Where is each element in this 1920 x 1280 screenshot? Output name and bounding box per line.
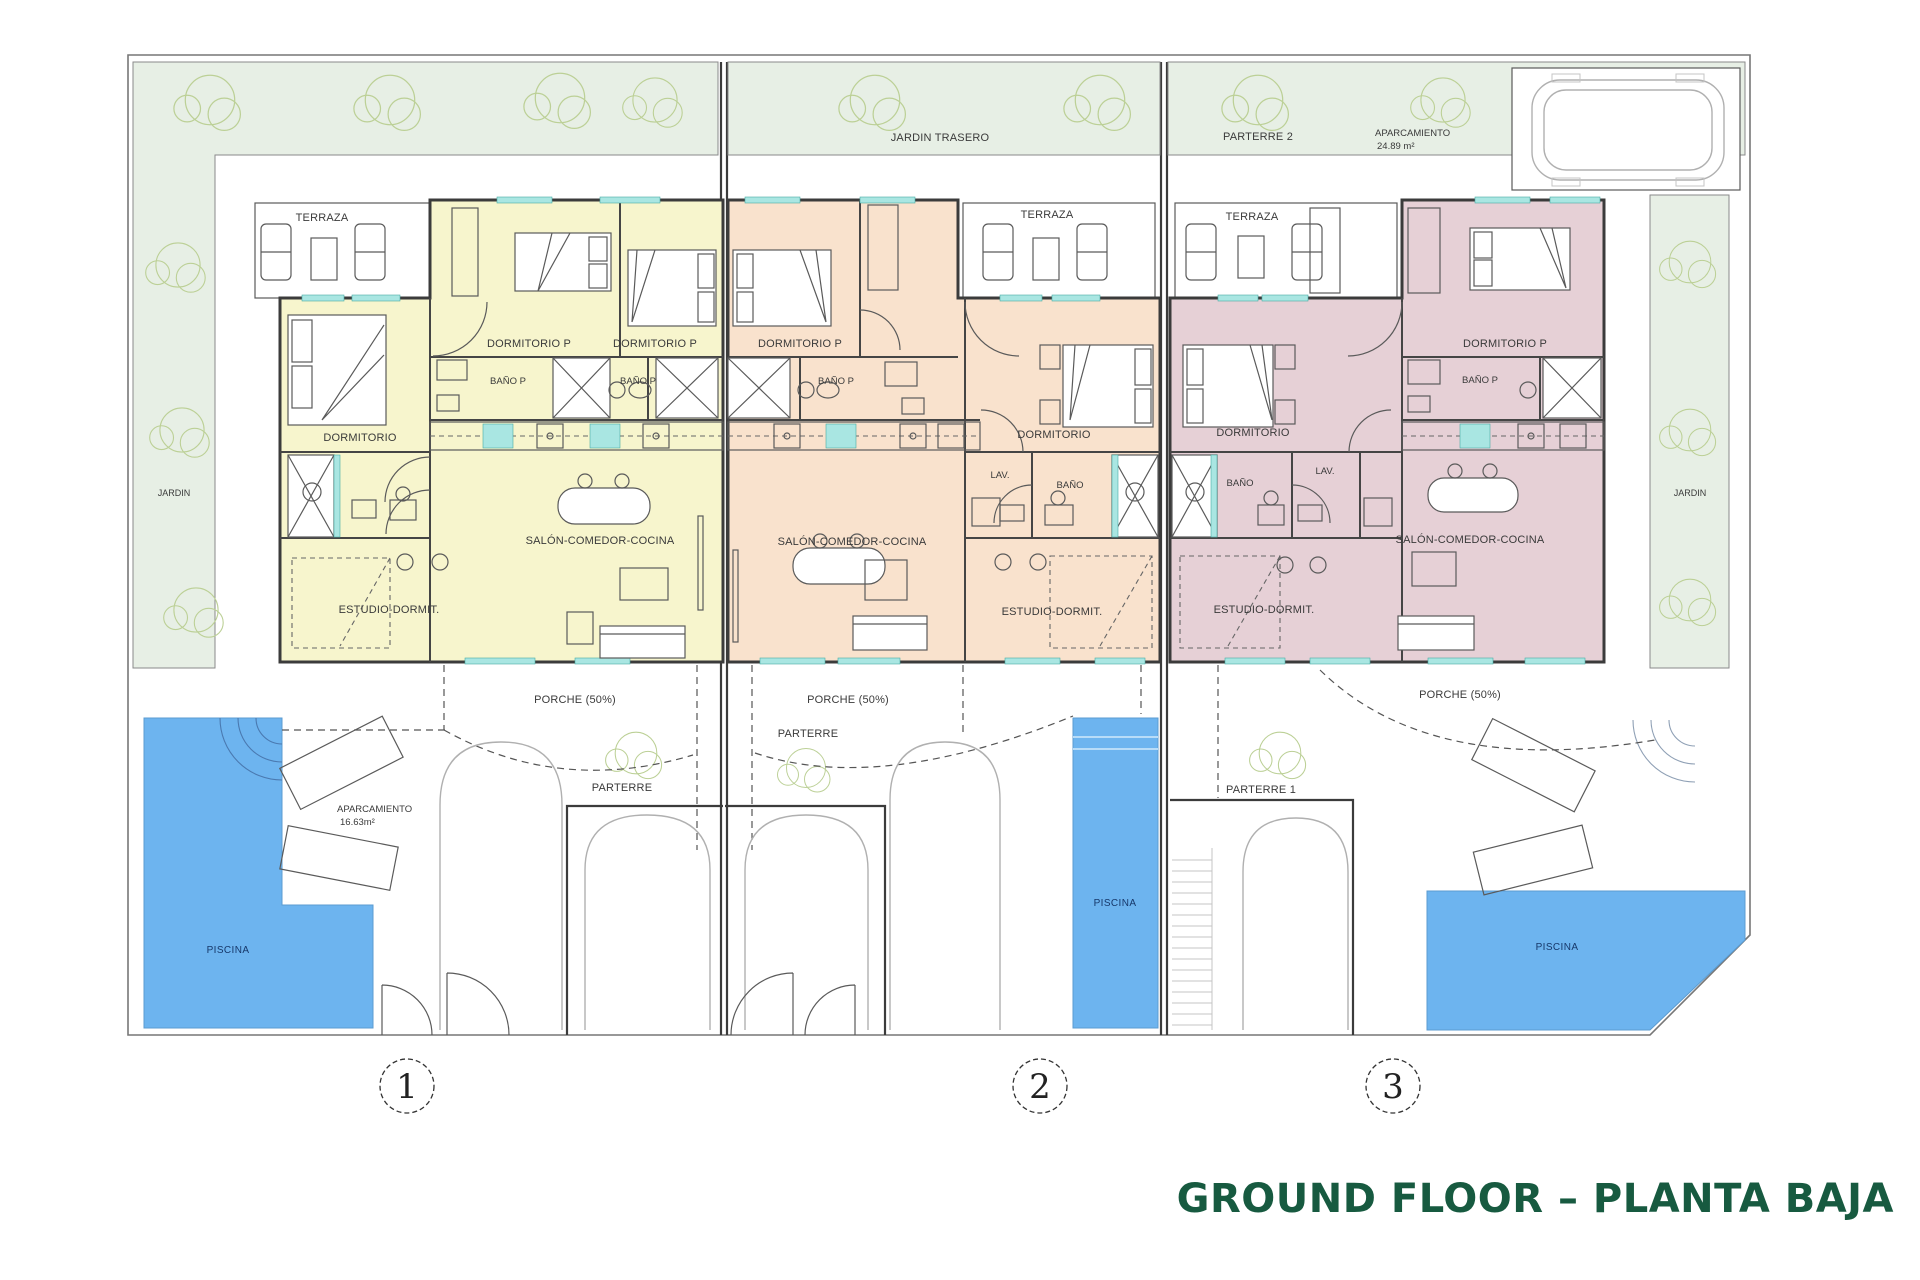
label-h3-estudio: ESTUDIO-DORMIT.: [1214, 604, 1315, 616]
label-jardin-right: JARDIN: [1674, 488, 1707, 498]
car-stall: [440, 742, 562, 1030]
kitchen-sink: [1460, 424, 1490, 448]
sofa: [600, 626, 685, 658]
car-stall: [1243, 818, 1348, 1030]
label-parterre-mid: PARTERRE: [778, 728, 838, 740]
label-aparcamiento-1: APARCAMIENTO: [337, 804, 412, 815]
garden-right: [1650, 195, 1729, 668]
label-piscina-left: PISCINA: [207, 945, 250, 956]
label-h1-dormitorio-p1: DORMITORIO P: [487, 338, 571, 350]
unit-3-number: 3: [1382, 1067, 1404, 1107]
parking-space: [1472, 719, 1595, 812]
bed: [1183, 345, 1273, 427]
sofa: [853, 616, 927, 650]
label-h1-terraza: TERRAZA: [296, 212, 349, 224]
label-h1-bano-p2: BAÑO P: [620, 376, 656, 387]
island-table: [558, 488, 650, 524]
label-h3-dormitorio-p: DORMITORIO P: [1463, 338, 1547, 350]
label-h1-bano-p1: BAÑO P: [490, 376, 526, 387]
label-h2-terraza: TERRAZA: [1021, 209, 1074, 221]
kitchen-sink: [590, 424, 620, 448]
gate-2: [731, 973, 855, 1035]
driveways: [280, 716, 1595, 1035]
pool-left: [144, 718, 373, 1028]
label-jardin-left: JARDIN: [158, 488, 191, 498]
label-jardin-trasero: JARDIN TRASERO: [891, 132, 990, 144]
label-h2-bano: BAÑO: [1057, 480, 1084, 491]
bed: [515, 233, 611, 291]
unit-numbers: 1 2 3: [380, 1059, 1420, 1113]
kitchen-sink: [826, 424, 856, 448]
parking-top: [1512, 68, 1740, 190]
plan-title: GROUND FLOOR – PLANTA BAJA: [1177, 1176, 1894, 1222]
label-h3-lav: LAV.: [1315, 466, 1334, 477]
pools: [144, 718, 1745, 1030]
steps: [1172, 848, 1212, 1030]
label-h3-salon: SALÓN-COMEDOR-COCINA: [1396, 533, 1545, 546]
label-aparcamiento-top-area: 24.89 m²: [1377, 141, 1415, 152]
car-stall: [585, 815, 710, 1030]
floor-plan-page: JARDIN JARDIN TRASERO PARTERRE 2 APARCAM…: [0, 0, 1920, 1280]
label-h1-estudio: ESTUDIO-DORMIT.: [339, 604, 440, 616]
bed: [1063, 345, 1153, 427]
terraza-3: [1175, 203, 1397, 298]
pool-right-steps: [1633, 720, 1695, 782]
unit-1-number: 1: [396, 1067, 418, 1107]
car-stall: [745, 815, 868, 1030]
label-h1-dormitorio-p2: DORMITORIO P: [613, 338, 697, 350]
pool-middle: [1073, 718, 1158, 1028]
label-aparcamiento-1-area: 16.63m²: [340, 817, 375, 828]
label-parterre-2: PARTERRE 2: [1223, 131, 1293, 143]
gate-1: [382, 973, 509, 1035]
kitchen-sink: [483, 424, 513, 448]
label-h2-dormitorio: DORMITORIO: [1017, 429, 1091, 441]
label-h2-lav: LAV.: [990, 470, 1009, 481]
label-h1-dormitorio: DORMITORIO: [323, 432, 397, 444]
parking-space: [1473, 825, 1592, 895]
island-table: [793, 548, 885, 584]
label-h2-estudio: ESTUDIO-DORMIT.: [1002, 606, 1103, 618]
island-table: [1428, 478, 1518, 512]
label-h3-dormitorio: DORMITORIO: [1216, 427, 1290, 439]
label-h3-bano-p: BAÑO P: [1462, 375, 1498, 386]
label-h2-dormitorio-p: DORMITORIO P: [758, 338, 842, 350]
label-h2-bano-p: BAÑO P: [818, 376, 854, 387]
bed: [1470, 228, 1570, 290]
label-h2-salon: SALÓN-COMEDOR-COCINA: [778, 535, 927, 548]
pool-right: [1427, 891, 1745, 1030]
car-stall: [890, 742, 1000, 1030]
label-h1-porche: PORCHE (50%): [534, 694, 616, 706]
label-parterre-low: PARTERRE: [592, 782, 652, 794]
patio-wall-3: [1170, 800, 1353, 1035]
floor-plan-drawing: JARDIN JARDIN TRASERO PARTERRE 2 APARCAM…: [0, 0, 1920, 1280]
label-h2-porche: PORCHE (50%): [807, 694, 889, 706]
label-parterre-1: PARTERRE 1: [1226, 784, 1296, 796]
label-piscina-right: PISCINA: [1536, 942, 1579, 953]
sofa: [1398, 616, 1474, 650]
label-h3-terraza: TERRAZA: [1226, 211, 1279, 223]
label-piscina-mid: PISCINA: [1094, 898, 1137, 909]
unit-2-number: 2: [1029, 1067, 1051, 1107]
label-aparcamiento-top: APARCAMIENTO: [1375, 128, 1450, 139]
parking-space: [280, 826, 398, 891]
label-h3-bano: BAÑO: [1227, 478, 1254, 489]
label-h3-porche: PORCHE (50%): [1419, 689, 1501, 701]
label-h1-salon: SALÓN-COMEDOR-COCINA: [526, 534, 675, 547]
